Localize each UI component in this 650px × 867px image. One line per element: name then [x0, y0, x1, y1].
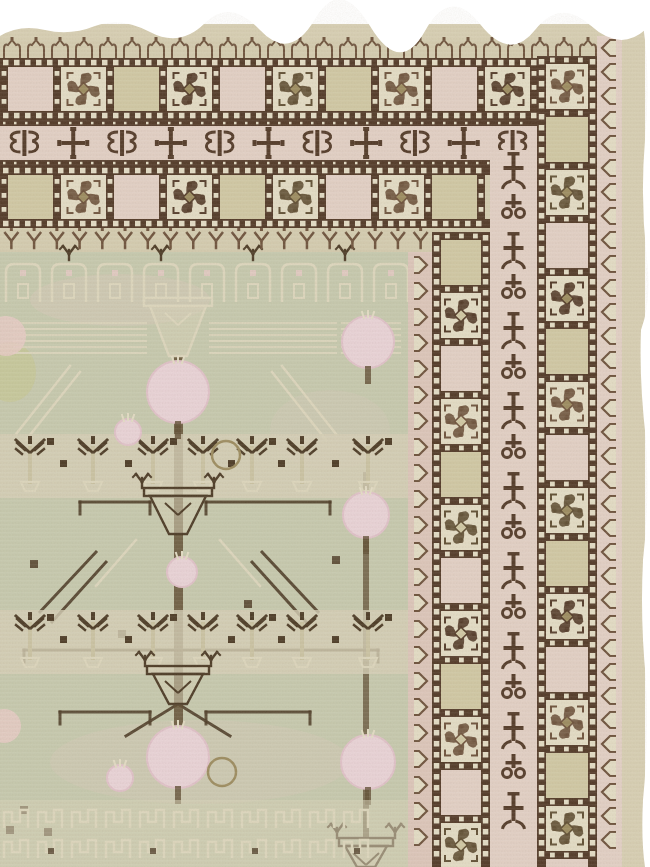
rug-corner-illustration [0, 0, 650, 867]
rug-photo [0, 0, 650, 867]
texture-overlay [0, 24, 645, 867]
